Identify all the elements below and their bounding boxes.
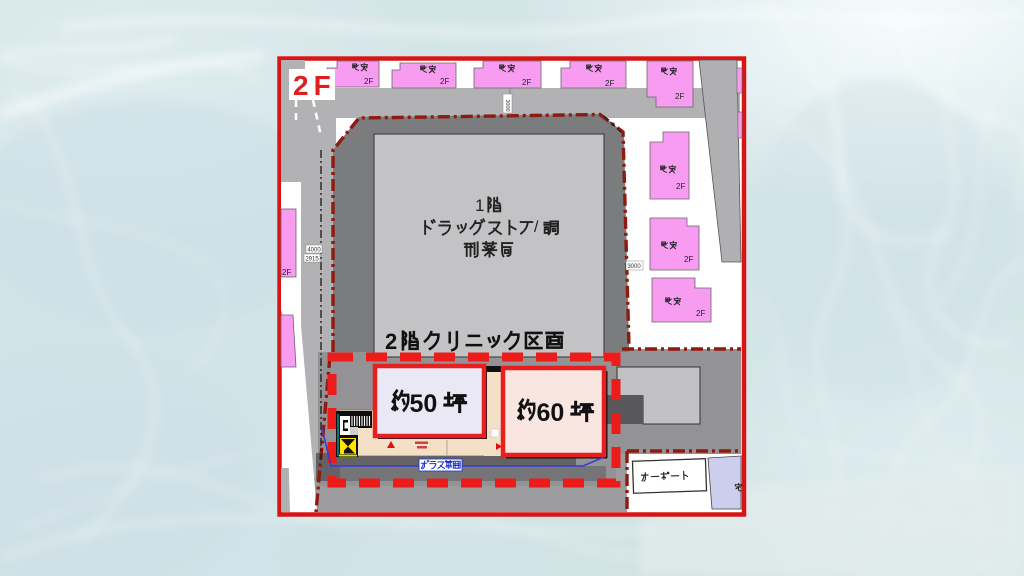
svg-text:3000: 3000 xyxy=(627,264,641,270)
svg-text:2915: 2915 xyxy=(305,257,319,263)
svg-text:1: 1 xyxy=(475,196,484,215)
svg-text:2F: 2F xyxy=(675,92,684,101)
svg-text:3000: 3000 xyxy=(504,99,510,111)
svg-text:4000: 4000 xyxy=(307,248,321,254)
svg-text:2F: 2F xyxy=(676,182,685,191)
svg-text:2F: 2F xyxy=(605,79,614,88)
svg-text:2F: 2F xyxy=(696,309,705,318)
svg-text:2F: 2F xyxy=(522,78,531,87)
svg-text:2: 2 xyxy=(385,329,397,354)
svg-text:2F: 2F xyxy=(684,255,693,264)
svg-text:60: 60 xyxy=(537,399,565,427)
svg-text:2F: 2F xyxy=(282,268,291,277)
svg-text:/: / xyxy=(534,219,539,236)
svg-text:2F: 2F xyxy=(364,77,373,86)
svg-text:50: 50 xyxy=(410,390,438,418)
svg-text:2F: 2F xyxy=(293,70,336,101)
svg-text:2F: 2F xyxy=(440,77,449,86)
